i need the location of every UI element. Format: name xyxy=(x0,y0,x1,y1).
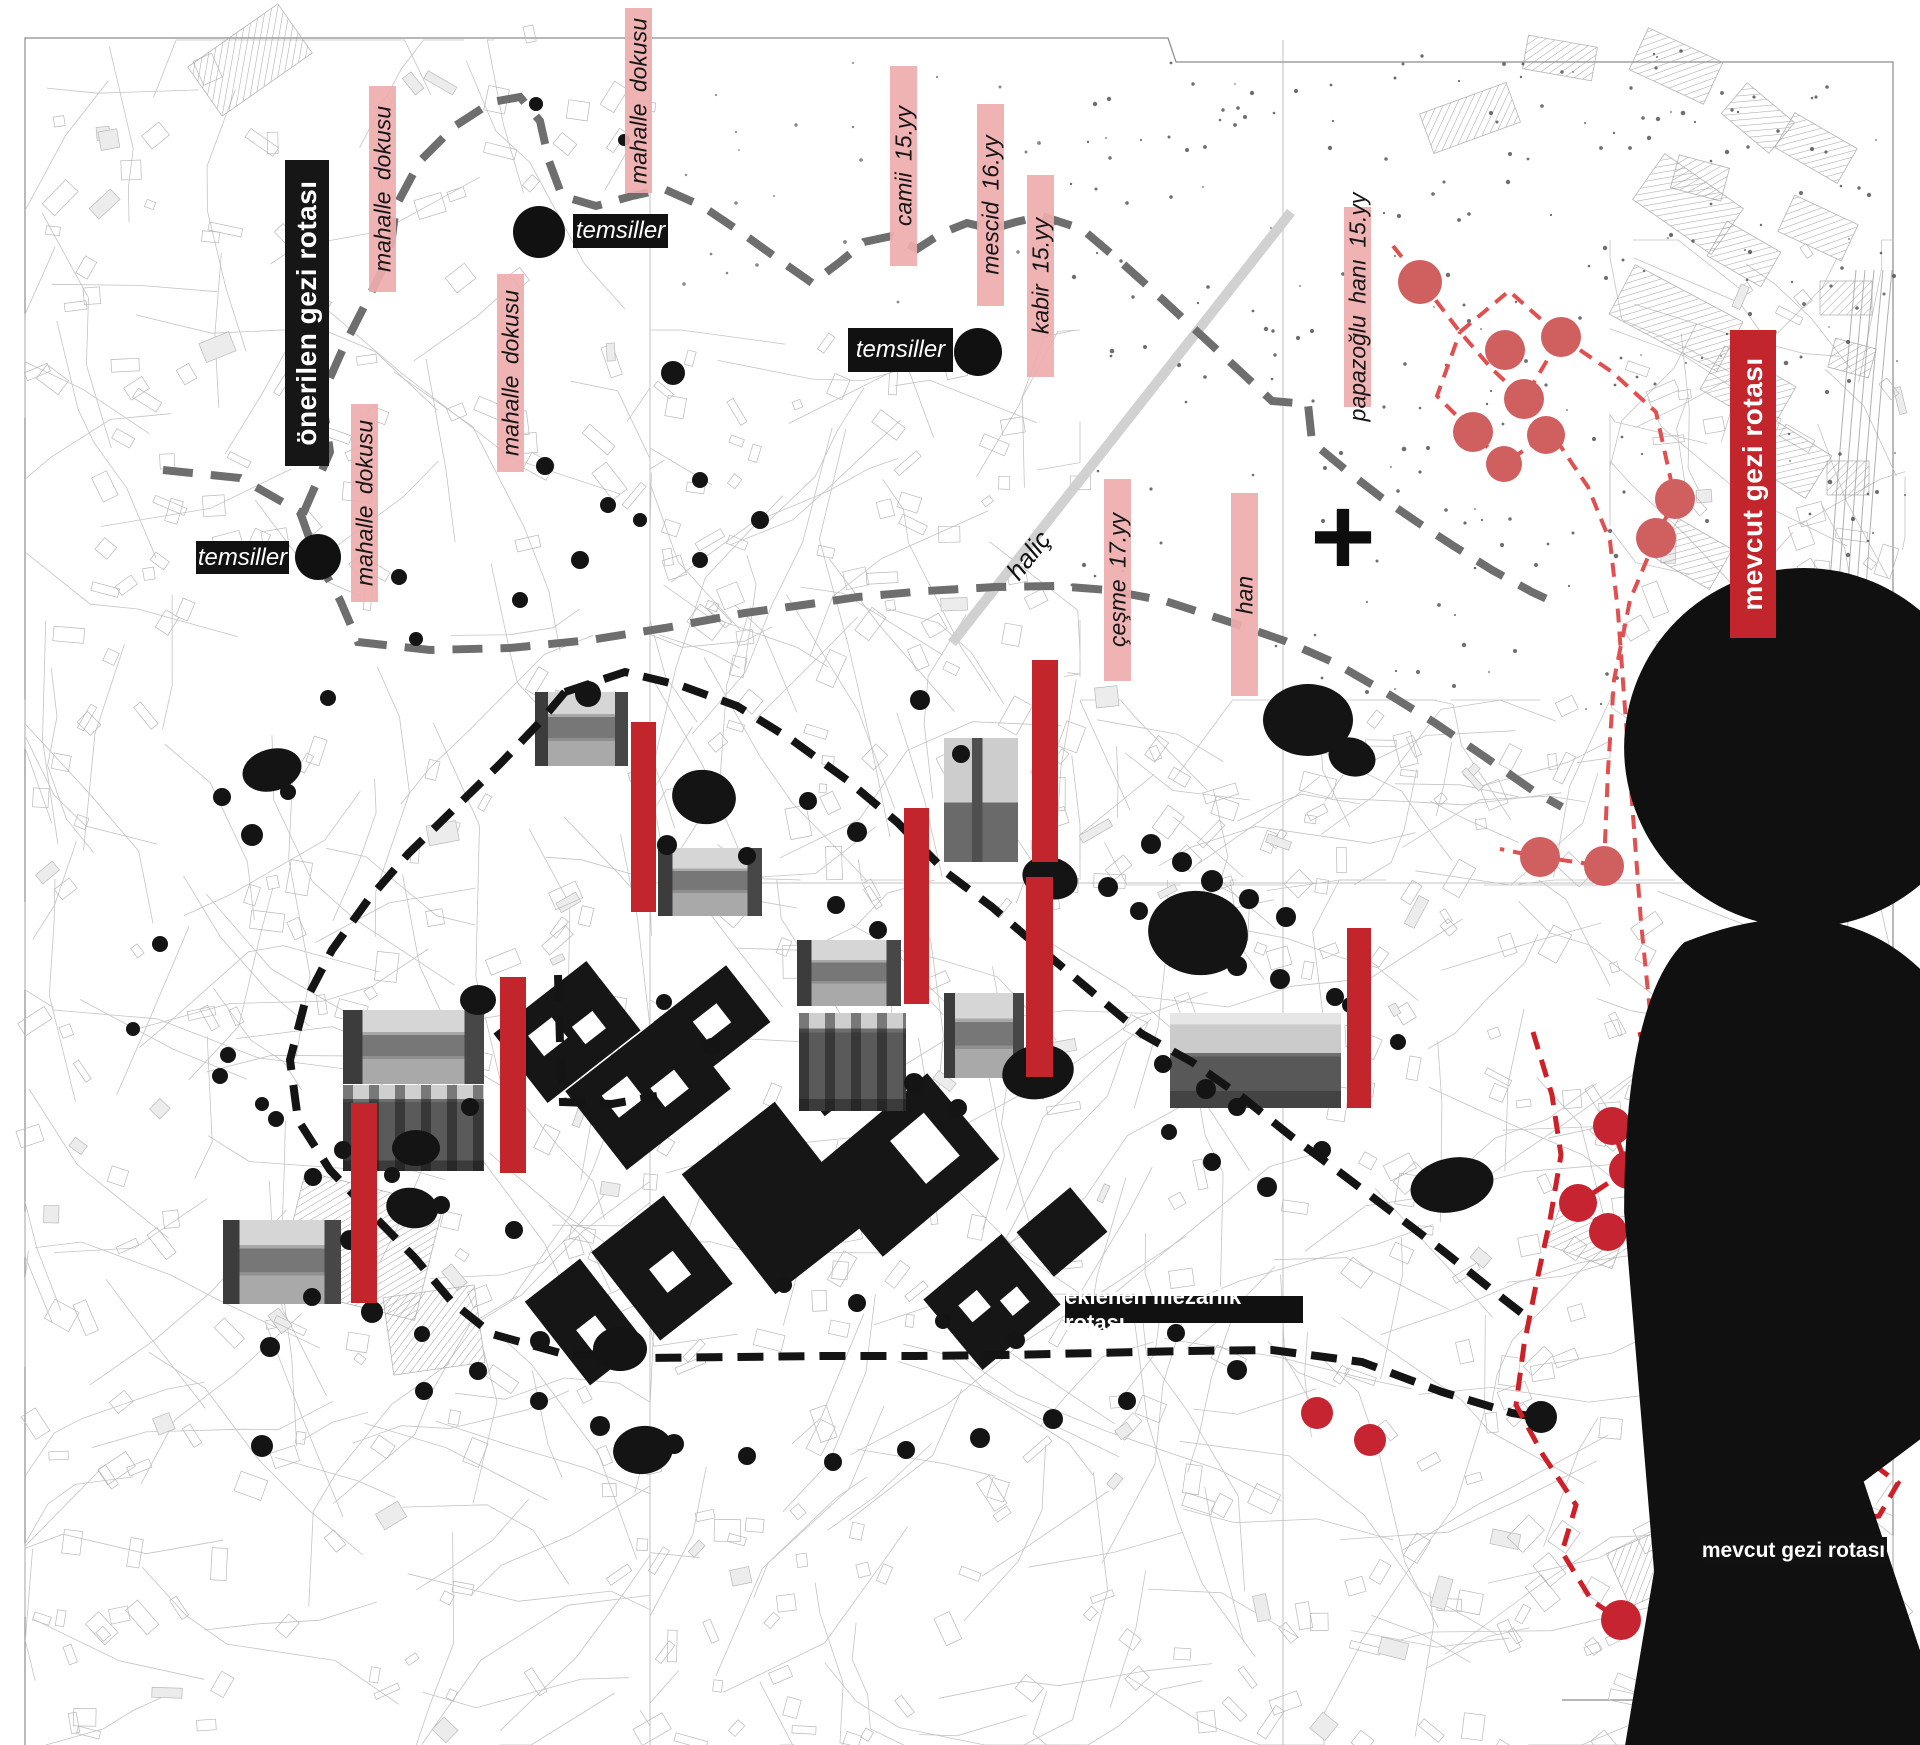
map-canvas: mahalle dokusumahalle dokusumahalle doku… xyxy=(0,0,1920,1745)
existing-route-box: mevcut gezi rotası xyxy=(1700,1537,1887,1564)
existing-route-banner-label: mevcut gezi rotası xyxy=(1737,357,1769,610)
halic-label: haliç xyxy=(1000,525,1057,586)
labels-layer: önerilen gezi rotası mevcut gezi rotası … xyxy=(0,0,1920,1745)
cemetery-route-box-label: eklenen mezarlık rotası xyxy=(1065,1284,1303,1336)
existing-route-banner: mevcut gezi rotası xyxy=(1730,330,1776,638)
proposed-route-banner-label: önerilen gezi rotası xyxy=(291,180,323,445)
existing-route-box-label: mevcut gezi rotası xyxy=(1702,1539,1885,1563)
proposed-route-banner: önerilen gezi rotası xyxy=(285,160,329,466)
cemetery-route-box: eklenen mezarlık rotası xyxy=(1065,1296,1303,1323)
plus-icon: + xyxy=(1310,492,1375,582)
